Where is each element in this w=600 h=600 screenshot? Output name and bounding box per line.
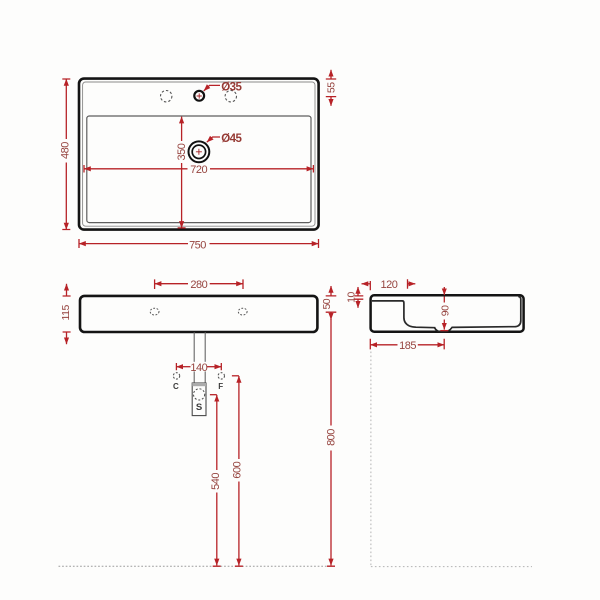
svg-text:Ø45: Ø45: [221, 133, 242, 145]
svg-text:185: 185: [399, 340, 416, 352]
svg-text:120: 120: [380, 279, 397, 291]
svg-text:480: 480: [59, 142, 71, 159]
svg-text:S: S: [196, 402, 202, 413]
svg-text:55: 55: [325, 82, 337, 93]
svg-text:Ø35: Ø35: [221, 81, 242, 93]
svg-text:C: C: [173, 382, 179, 391]
svg-text:720: 720: [190, 164, 207, 176]
svg-text:115: 115: [60, 305, 72, 321]
svg-text:540: 540: [210, 473, 222, 490]
svg-text:600: 600: [232, 461, 244, 478]
svg-text:350: 350: [176, 143, 188, 160]
svg-text:140: 140: [190, 362, 207, 374]
svg-text:90: 90: [440, 305, 452, 316]
svg-text:F: F: [218, 382, 223, 391]
svg-text:750: 750: [189, 240, 206, 252]
svg-text:280: 280: [190, 279, 207, 291]
svg-text:50: 50: [321, 298, 333, 309]
svg-text:10: 10: [346, 292, 358, 303]
svg-text:800: 800: [325, 429, 337, 446]
